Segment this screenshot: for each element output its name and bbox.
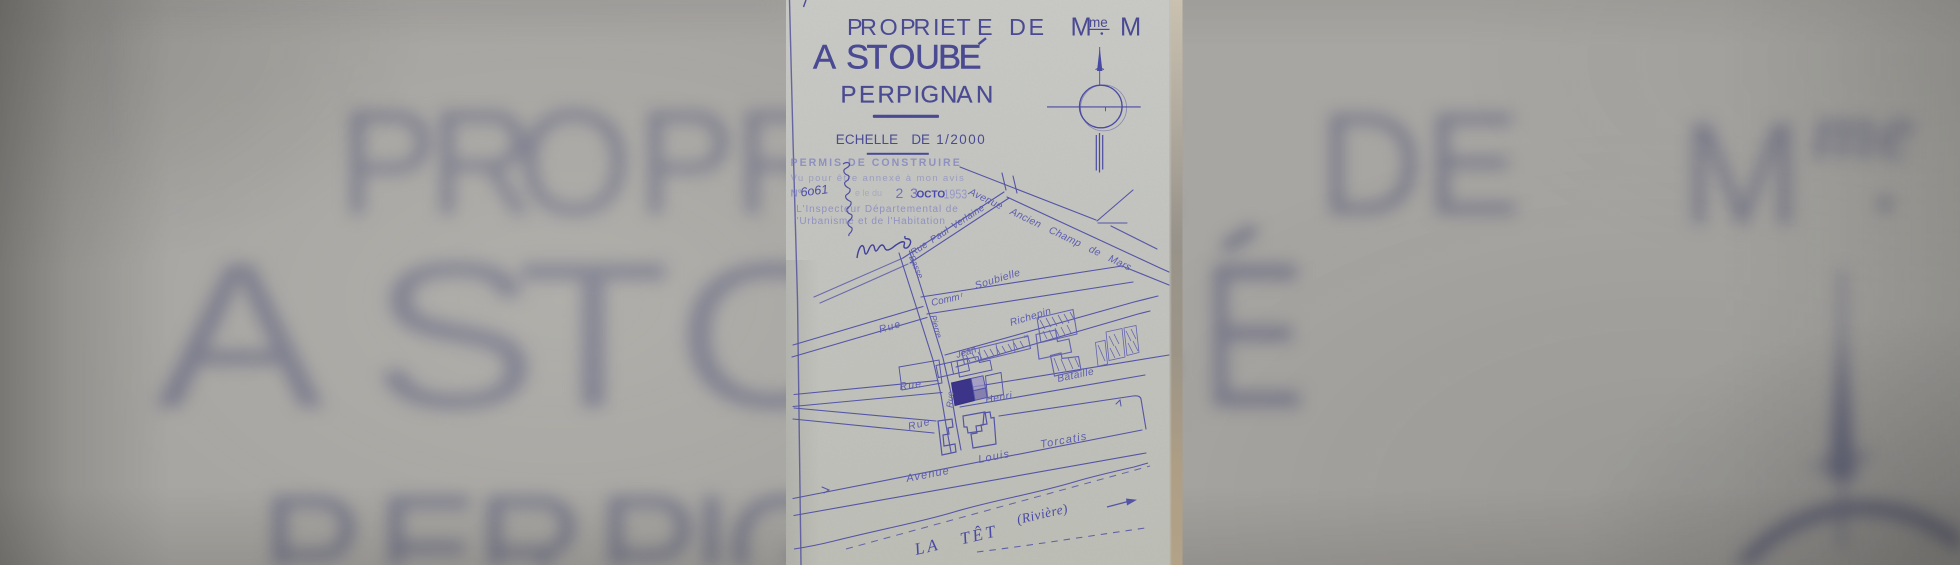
svg-text:DE: DE [911,132,930,147]
svg-text:Rue: Rue [945,391,956,408]
svg-text:1953: 1953 [944,186,968,201]
svg-text:L'Inspecteur Départemental de: L'Inspecteur Départemental de [796,204,959,215]
svg-text:OCTO: OCTO [917,190,946,201]
svg-text:l'Urbanisme et de l'Habitation: l'Urbanisme et de l'Habitation [794,216,946,227]
svg-text:PERPIGNAN: PERPIGNAN [841,82,994,109]
svg-text:Vu pour être annexé à mon avis: Vu pour être annexé à mon avis [791,173,966,184]
svg-text:PERMIS DE CONSTRUIRE: PERMIS DE CONSTRUIRE [791,157,962,169]
svg-text:M: M [1120,13,1141,41]
svg-text:1/2000: 1/2000 [936,132,986,147]
svg-text:PROPRIETE: PROPRIETE [847,14,993,40]
svg-text:e le du: e le du [855,188,882,198]
svg-text:ECHELLE: ECHELLE [836,132,898,147]
svg-text:me: me [1089,15,1108,30]
